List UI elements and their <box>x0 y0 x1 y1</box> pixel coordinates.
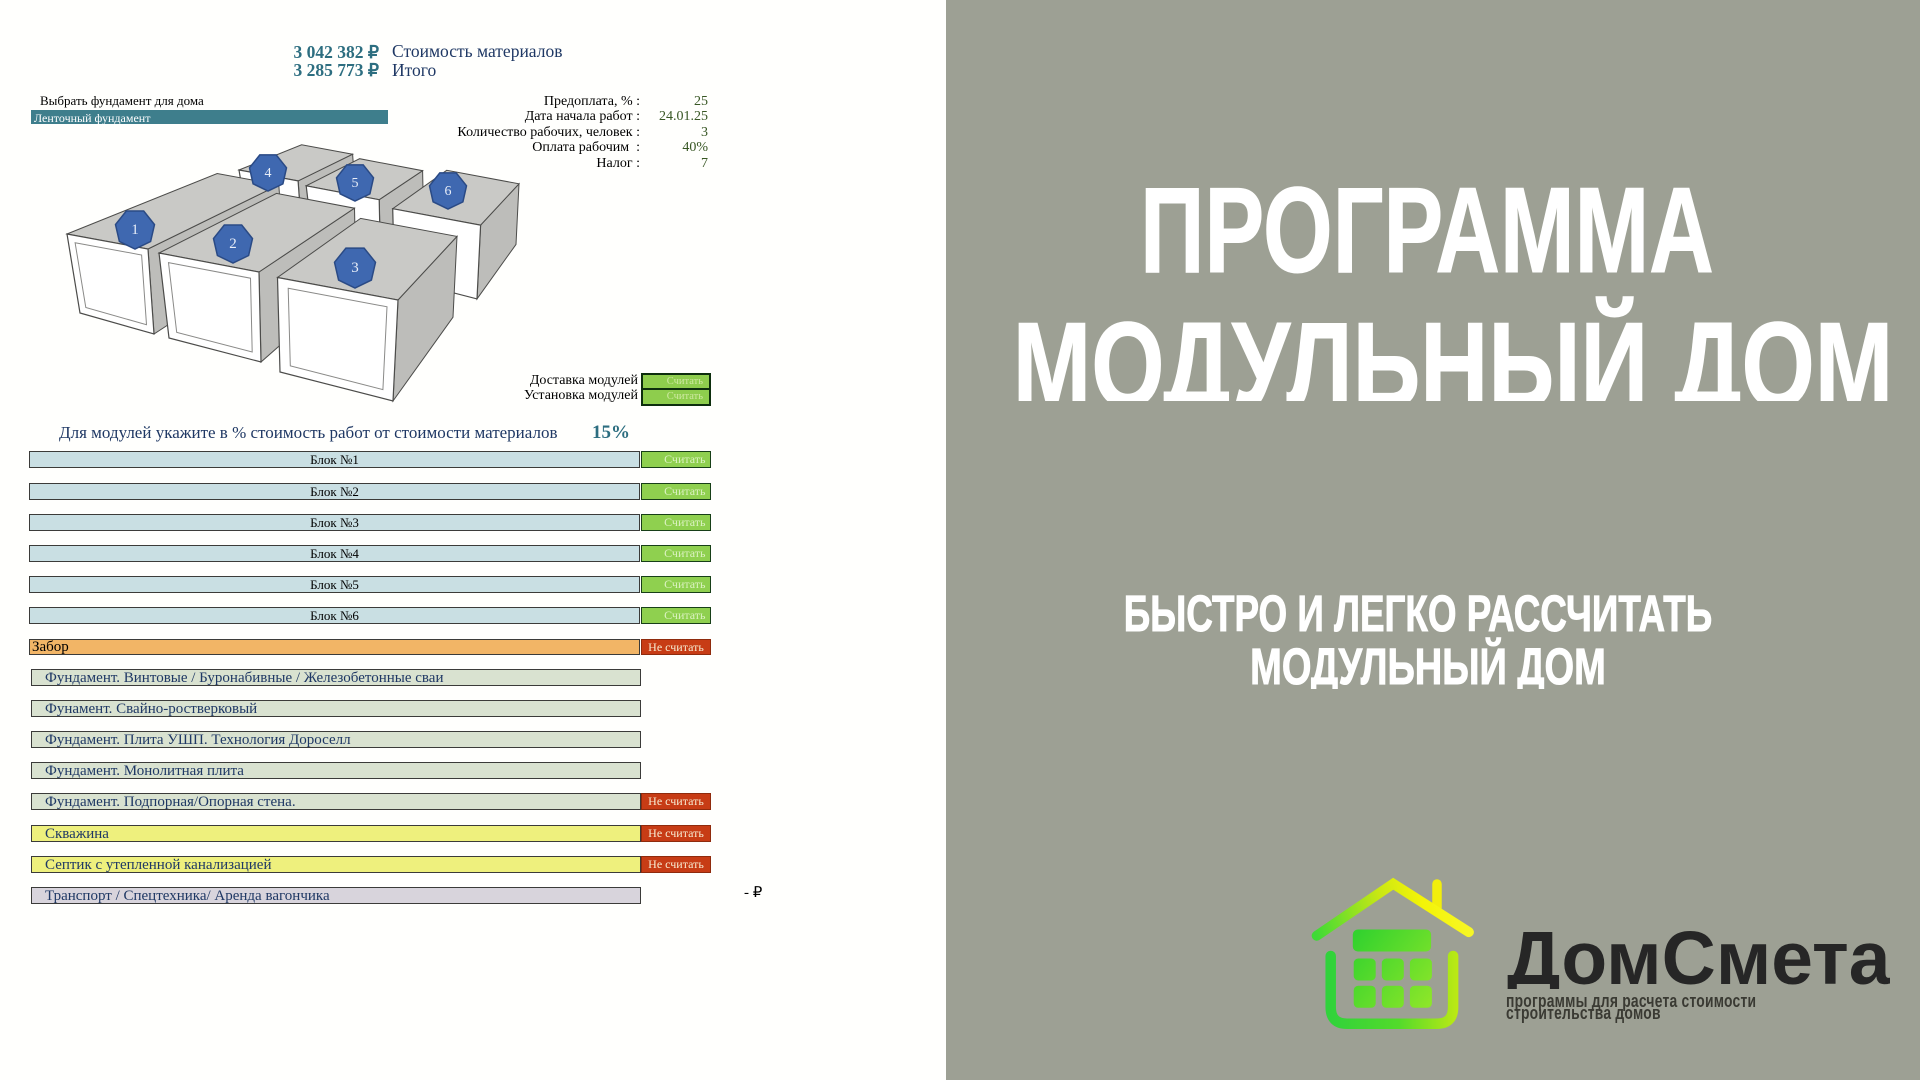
svg-text:5: 5 <box>352 176 359 191</box>
svg-text:3: 3 <box>351 260 359 276</box>
svg-text:6: 6 <box>445 184 452 199</box>
svg-text:1: 1 <box>131 222 139 238</box>
svg-text:4: 4 <box>265 166 272 181</box>
svg-text:2: 2 <box>229 236 237 252</box>
